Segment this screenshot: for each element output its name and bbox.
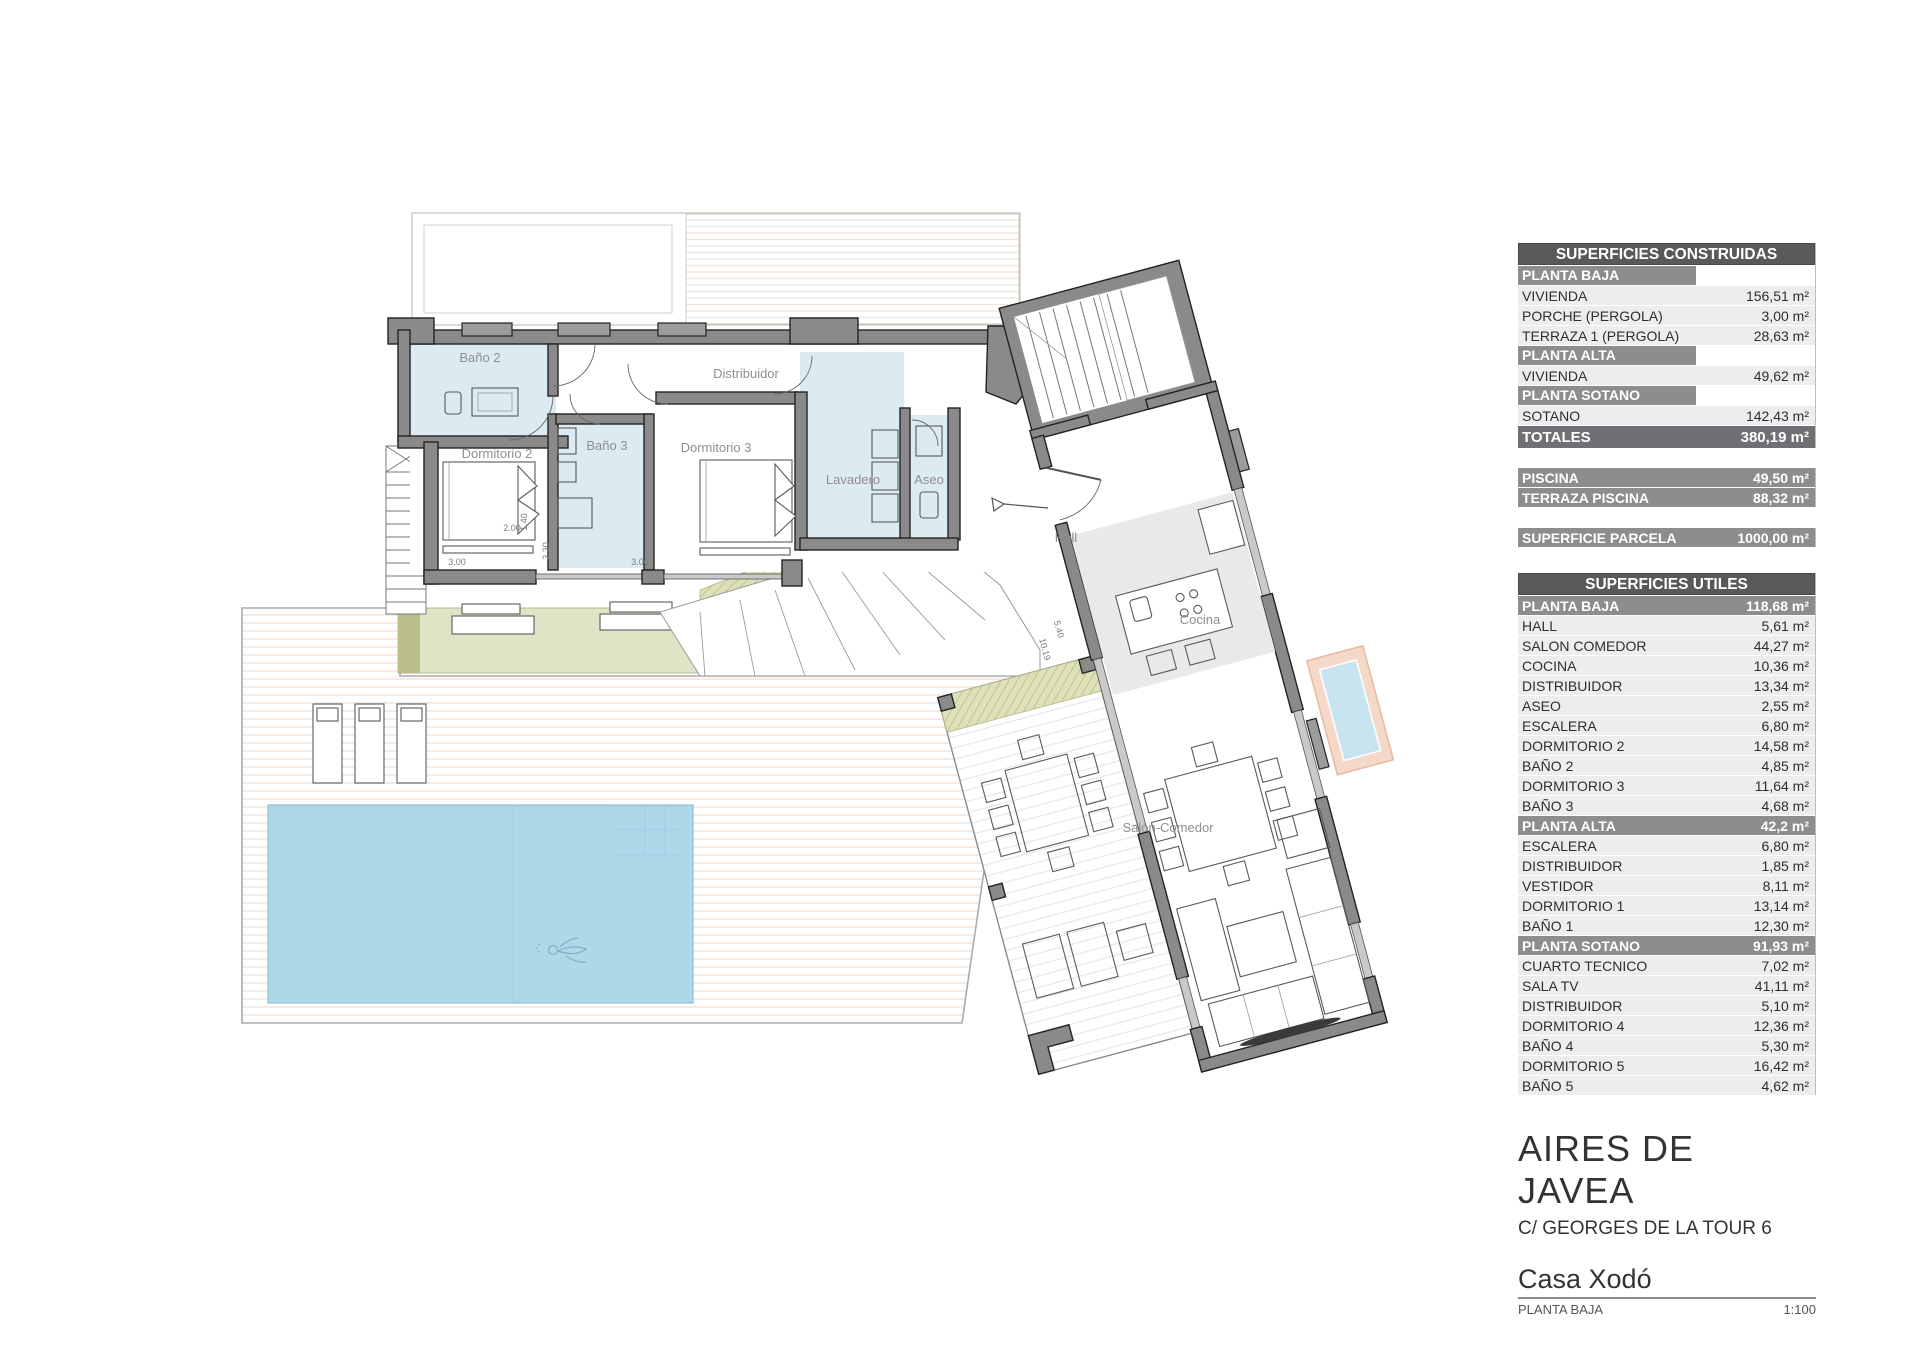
row-value: 42,2 m² (1761, 818, 1809, 834)
row-value: 3,00 m² (1762, 308, 1809, 324)
sheet-scale: 1:100 (1783, 1302, 1816, 1317)
table-row: SUPERFICIE PARCELA1000,00 m² (1518, 528, 1815, 547)
table-row: DORMITORIO 516,42 m² (1518, 1056, 1815, 1075)
table-row: PORCHE (PERGOLA)3,00 m² (1518, 306, 1815, 325)
table-row: SOTANO142,43 m² (1518, 406, 1815, 425)
group-header: PLANTA BAJA118,68 m² (1518, 596, 1815, 615)
table-title: SUPERFICIES UTILES (1518, 573, 1815, 595)
project-title: AIRES DE JAVEA (1518, 1128, 1816, 1212)
room-label-aseo: Aseo (914, 472, 944, 487)
table-row: BAÑO 34,68 m² (1518, 796, 1815, 815)
superficies-utiles-table: SUPERFICIES UTILES PLANTA BAJA118,68 m² … (1518, 573, 1816, 1095)
room-label-distribuidor: Distribuidor (713, 366, 779, 381)
dim-bed-length: 1.40 (519, 513, 529, 531)
title-block: AIRES DE JAVEA C/ GEORGES DE LA TOUR 6 C… (1518, 1128, 1816, 1317)
project-address: C/ GEORGES DE LA TOUR 6 (1518, 1218, 1816, 1240)
row-value: 6,80 m² (1762, 838, 1809, 854)
row-value: 88,32 m² (1753, 490, 1809, 506)
table-row: SALON COMEDOR44,27 m² (1518, 636, 1815, 655)
table-row: TERRAZA 1 (PERGOLA)28,63 m² (1518, 326, 1815, 345)
row-value: 16,42 m² (1754, 1058, 1809, 1074)
areas-sidebar: SUPERFICIES CONSTRUIDAS PLANTA BAJA VIVI… (1518, 243, 1816, 1095)
row-value: 142,43 m² (1746, 408, 1809, 424)
sheet-name: PLANTA BAJA (1518, 1302, 1603, 1317)
row-value: 4,68 m² (1762, 798, 1809, 814)
row-label: PORCHE (PERGOLA) (1522, 308, 1663, 324)
table-row: ESCALERA6,80 m² (1518, 716, 1815, 735)
row-value: 5,10 m² (1762, 998, 1809, 1014)
row-label: PLANTA BAJA (1522, 598, 1619, 614)
table-row: BAÑO 54,62 m² (1518, 1076, 1815, 1095)
piscina-table: PISCINA49,50 m² TERRAZA PISCINA88,32 m² (1518, 468, 1816, 507)
table-row: COCINA10,36 m² (1518, 656, 1815, 675)
row-value: 156,51 m² (1746, 288, 1809, 304)
room-label-bano2: Baño 2 (459, 350, 500, 365)
table-row: VESTIDOR8,11 m² (1518, 876, 1815, 895)
row-value: 4,62 m² (1762, 1078, 1809, 1094)
row-value: 12,30 m² (1754, 918, 1809, 934)
row-label: BAÑO 5 (1522, 1078, 1573, 1094)
house-name: Casa Xodó (1518, 1264, 1816, 1295)
row-label: DORMITORIO 3 (1522, 778, 1624, 794)
row-label: VIVIENDA (1522, 368, 1587, 384)
row-label: DISTRIBUIDOR (1522, 998, 1622, 1014)
floor-plan: .wl{fill:#8A8A8A;stroke:#232323;stroke-w… (0, 0, 1520, 1357)
room-label-bano3: Baño 3 (586, 438, 627, 453)
row-label: ESCALERA (1522, 718, 1597, 734)
superficies-construidas-table: SUPERFICIES CONSTRUIDAS PLANTA BAJA VIVI… (1518, 243, 1816, 448)
table-row: TERRAZA PISCINA88,32 m² (1518, 488, 1815, 507)
row-value: 11,64 m² (1755, 778, 1809, 794)
table-row: DORMITORIO 113,14 m² (1518, 896, 1815, 915)
row-value: 41,11 m² (1755, 978, 1809, 994)
room-label-cocina: Cocina (1180, 612, 1221, 627)
row-label: PLANTA SOTANO (1522, 938, 1640, 954)
room-label-salon: Salón-Comedor (1122, 820, 1214, 835)
row-label: TOTALES (1522, 429, 1591, 446)
row-label: VESTIDOR (1522, 878, 1594, 894)
table-row: DORMITORIO 311,64 m² (1518, 776, 1815, 795)
row-value: 4,85 m² (1762, 758, 1809, 774)
table-row: DORMITORIO 214,58 m² (1518, 736, 1815, 755)
dim-dorm3-width: 3.00 (631, 557, 649, 567)
row-value: 118,68 m² (1746, 598, 1809, 614)
row-label: SALA TV (1522, 978, 1579, 994)
parcela-table: SUPERFICIE PARCELA1000,00 m² (1518, 528, 1816, 547)
row-label: DORMITORIO 4 (1522, 1018, 1624, 1034)
table-row: HALL5,61 m² (1518, 616, 1815, 635)
row-label: DISTRIBUIDOR (1522, 858, 1622, 874)
row-label: BAÑO 2 (1522, 758, 1573, 774)
table-row: ASEO2,55 m² (1518, 696, 1815, 715)
row-value: 2,55 m² (1762, 698, 1809, 714)
row-value: 44,27 m² (1754, 638, 1809, 654)
row-value: 5,61 m² (1762, 618, 1809, 634)
roof-outline (412, 213, 1020, 325)
row-label: BAÑO 1 (1522, 918, 1573, 934)
title-divider (1518, 1297, 1816, 1299)
section-header: PLANTA SOTANO (1518, 386, 1696, 405)
table-row: BAÑO 24,85 m² (1518, 756, 1815, 775)
plan-sheet: .wl{fill:#8A8A8A;stroke:#232323;stroke-w… (0, 0, 1920, 1357)
table-row: CUARTO TECNICO7,02 m² (1518, 956, 1815, 975)
table-row: SALA TV41,11 m² (1518, 976, 1815, 995)
table-row: PISCINA49,50 m² (1518, 468, 1815, 487)
row-value: 1000,00 m² (1737, 530, 1809, 546)
table-row: DISTRIBUIDOR13,34 m² (1518, 676, 1815, 695)
section-header: PLANTA BAJA (1518, 266, 1696, 285)
row-label: DORMITORIO 5 (1522, 1058, 1624, 1074)
table-title: SUPERFICIES CONSTRUIDAS (1518, 243, 1815, 265)
row-value: 1,85 m² (1762, 858, 1809, 874)
table-row: BAÑO 112,30 m² (1518, 916, 1815, 935)
row-value: 14,58 m² (1754, 738, 1809, 754)
row-label: COCINA (1522, 658, 1576, 674)
dim-wing-a: 5.40 (1052, 619, 1066, 639)
row-label: CUARTO TECNICO (1522, 958, 1647, 974)
row-label: SALON COMEDOR (1522, 638, 1646, 654)
dim-dorm2-width: 3.00 (448, 557, 466, 567)
row-value: 12,36 m² (1754, 1018, 1809, 1034)
table-row: VIVIENDA49,62 m² (1518, 366, 1815, 385)
room-label-dormitorio3: Dormitorio 3 (681, 440, 752, 455)
table-row: DISTRIBUIDOR5,10 m² (1518, 996, 1815, 1015)
row-label: TERRAZA 1 (PERGOLA) (1522, 328, 1679, 344)
room-label-hall: Hall (1055, 530, 1078, 545)
row-label: PISCINA (1522, 470, 1579, 486)
row-label: DORMITORIO 1 (1522, 898, 1624, 914)
interior-stairs (999, 260, 1214, 440)
table-row: DORMITORIO 412,36 m² (1518, 1016, 1815, 1035)
table-row: ESCALERA6,80 m² (1518, 836, 1815, 855)
row-label: TERRAZA PISCINA (1522, 490, 1649, 506)
row-label: HALL (1522, 618, 1557, 634)
row-label: BAÑO 3 (1522, 798, 1573, 814)
room-label-dormitorio2: Dormitorio 2 (462, 446, 533, 461)
row-value: 91,93 m² (1753, 938, 1809, 954)
row-label: SOTANO (1522, 408, 1580, 424)
row-label: PLANTA ALTA (1522, 818, 1616, 834)
pool (268, 805, 693, 1003)
row-value: 7,02 m² (1762, 958, 1809, 974)
row-value: 6,80 m² (1762, 718, 1809, 734)
row-label: BAÑO 4 (1522, 1038, 1573, 1054)
row-label: ESCALERA (1522, 838, 1597, 854)
section-header: PLANTA ALTA (1518, 346, 1696, 365)
totals-row: TOTALES380,19 m² (1518, 426, 1815, 448)
group-header: PLANTA ALTA42,2 m² (1518, 816, 1815, 835)
row-label: ASEO (1522, 698, 1561, 714)
room-label-lavadero: Lavadero (826, 472, 880, 487)
row-value: 49,62 m² (1754, 368, 1809, 384)
row-value: 28,63 m² (1754, 328, 1809, 344)
table-row: BAÑO 45,30 m² (1518, 1036, 1815, 1055)
dim-dorm2-depth: 3.30 (541, 542, 551, 560)
row-label: DORMITORIO 2 (1522, 738, 1624, 754)
row-value: 5,30 m² (1762, 1038, 1809, 1054)
row-label: DISTRIBUIDOR (1522, 678, 1622, 694)
row-value: 49,50 m² (1753, 470, 1809, 486)
row-value: 380,19 m² (1741, 429, 1809, 446)
row-value: 13,14 m² (1754, 898, 1809, 914)
row-label: VIVIENDA (1522, 288, 1587, 304)
table-row: VIVIENDA156,51 m² (1518, 286, 1815, 305)
row-value: 13,34 m² (1754, 678, 1809, 694)
group-header: PLANTA SOTANO91,93 m² (1518, 936, 1815, 955)
table-row: DISTRIBUIDOR1,85 m² (1518, 856, 1815, 875)
row-value: 8,11 m² (1763, 878, 1809, 894)
row-value: 10,36 m² (1754, 658, 1809, 674)
sun-loungers (313, 704, 426, 783)
row-label: SUPERFICIE PARCELA (1522, 530, 1677, 546)
